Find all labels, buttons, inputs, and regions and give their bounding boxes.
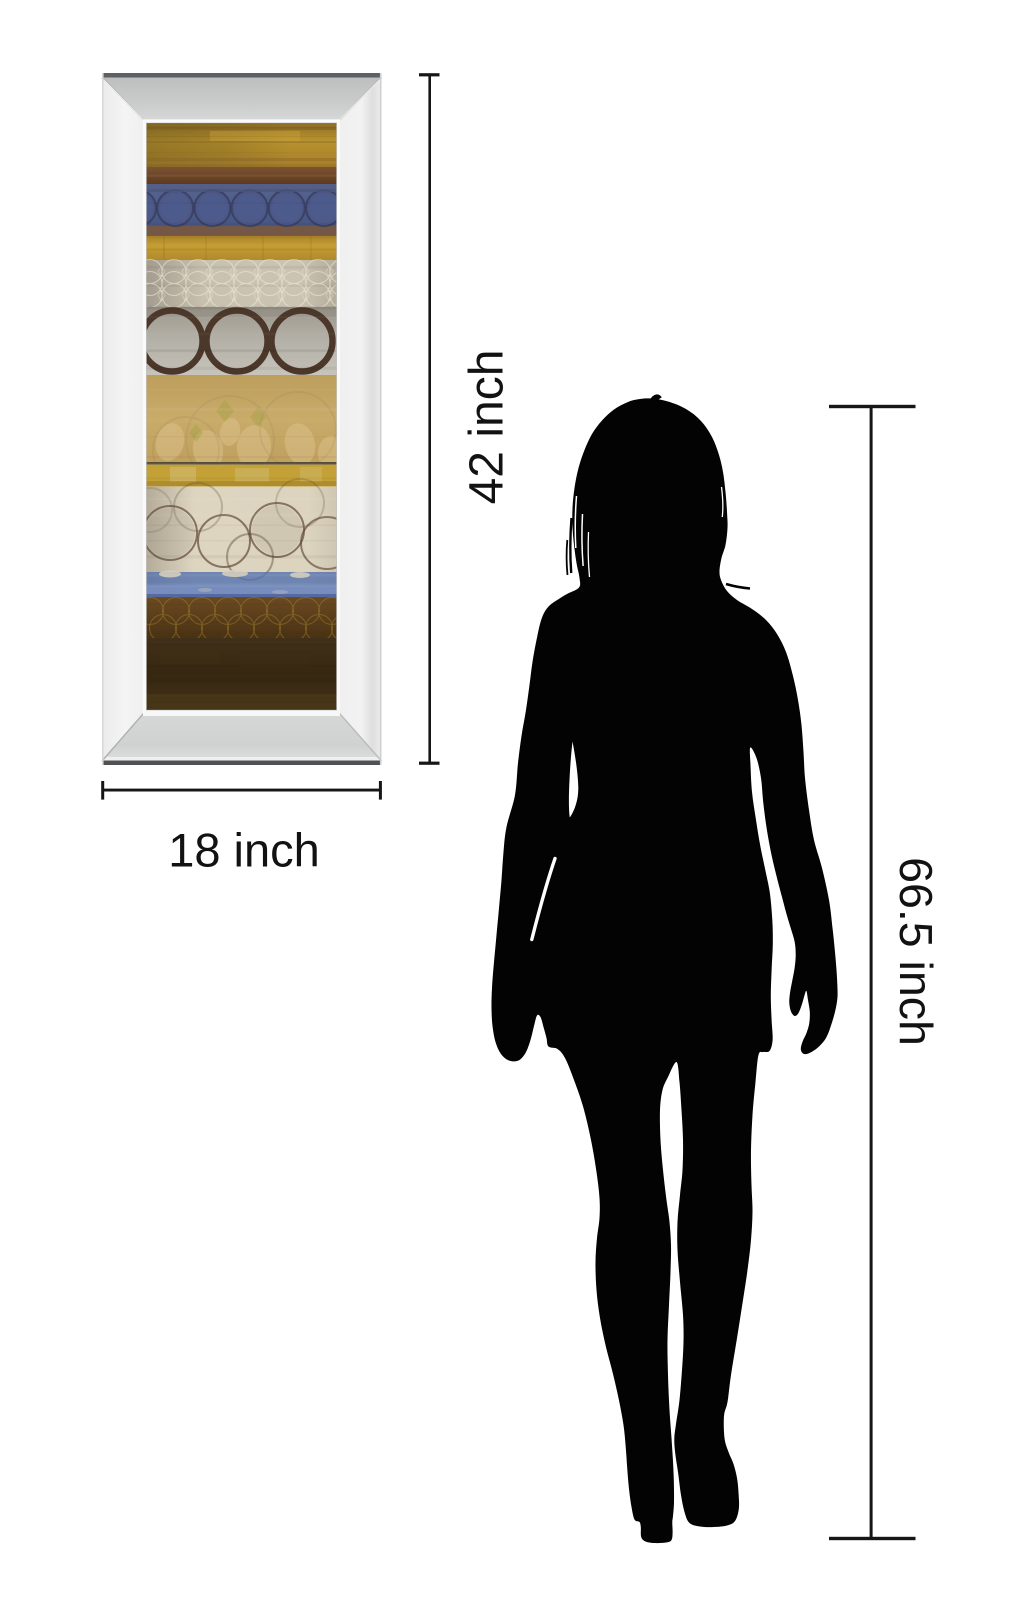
svg-text:66.5 inch: 66.5 inch: [890, 857, 942, 1046]
svg-text:18 inch: 18 inch: [168, 824, 320, 877]
svg-text:42 inch: 42 inch: [461, 350, 514, 505]
